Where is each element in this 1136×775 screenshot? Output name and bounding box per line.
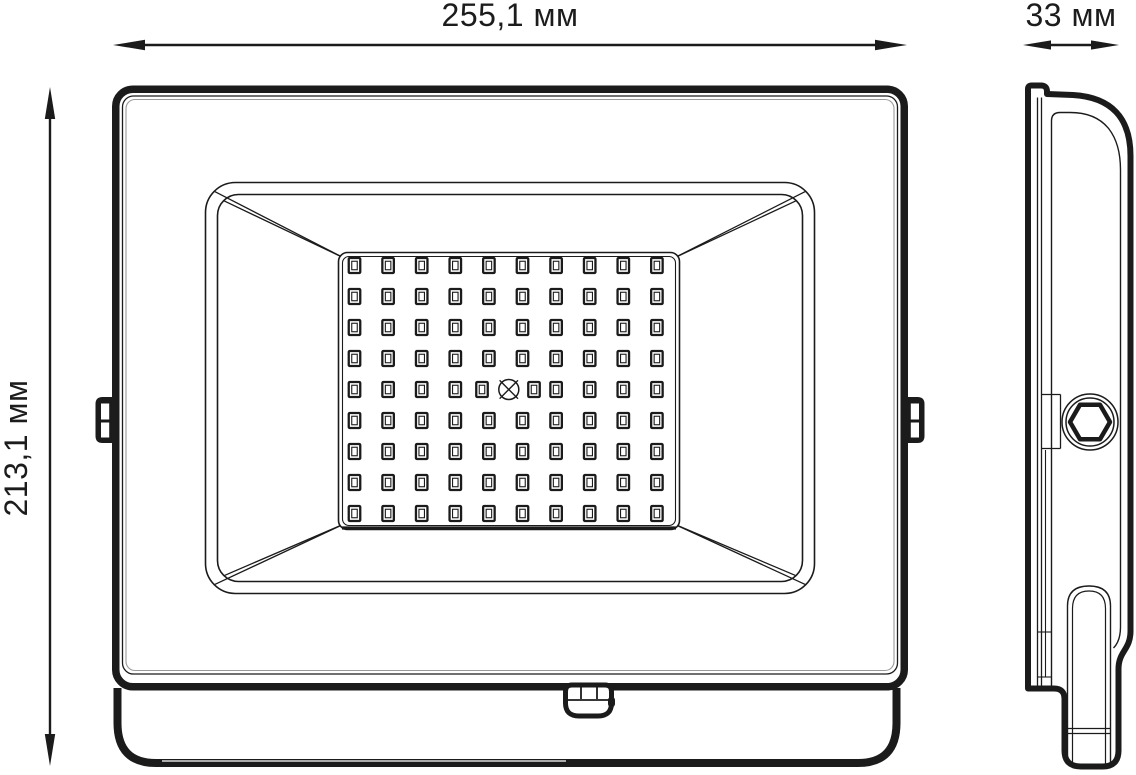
drawing-page: 255,1 мм 33 мм 213,1 мм xyxy=(0,0,1136,775)
width-dimension-label: 255,1 мм xyxy=(390,0,630,33)
hex-knob xyxy=(1062,394,1118,450)
tab-window xyxy=(101,423,109,438)
left-mount-tab xyxy=(96,397,114,443)
height-dimension-line xyxy=(45,87,55,766)
arrow-left-icon xyxy=(113,40,145,50)
height-dimension-label: 213,1 мм xyxy=(0,328,34,568)
right-mount-tab xyxy=(907,397,925,443)
depth-dimension-label: 33 мм xyxy=(991,0,1136,33)
mounting-bracket xyxy=(118,688,897,763)
cable-gland xyxy=(566,685,616,716)
gland-nub xyxy=(608,697,615,707)
tab-window xyxy=(911,404,919,420)
arrow-up-icon xyxy=(45,87,55,119)
arrow-right-icon xyxy=(1091,40,1119,49)
side-view xyxy=(1028,86,1131,767)
front-view xyxy=(96,89,925,763)
arrow-left-icon xyxy=(1023,40,1051,49)
arrow-down-icon xyxy=(45,734,55,766)
tab-window xyxy=(911,423,919,438)
depth-dimension-line xyxy=(1023,40,1119,49)
width-dimension-line xyxy=(113,40,907,50)
arrow-right-icon xyxy=(875,40,907,50)
tab-window xyxy=(101,404,109,420)
drawing-canvas xyxy=(0,0,1136,775)
